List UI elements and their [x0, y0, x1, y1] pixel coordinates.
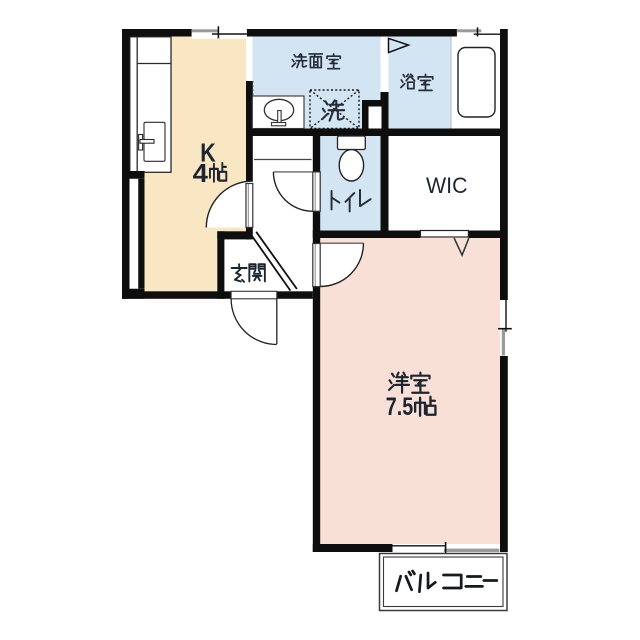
svg-text:4: 4	[193, 160, 209, 188]
svg-text:7.5: 7.5	[386, 393, 414, 421]
svg-text:WIC: WIC	[426, 173, 468, 198]
